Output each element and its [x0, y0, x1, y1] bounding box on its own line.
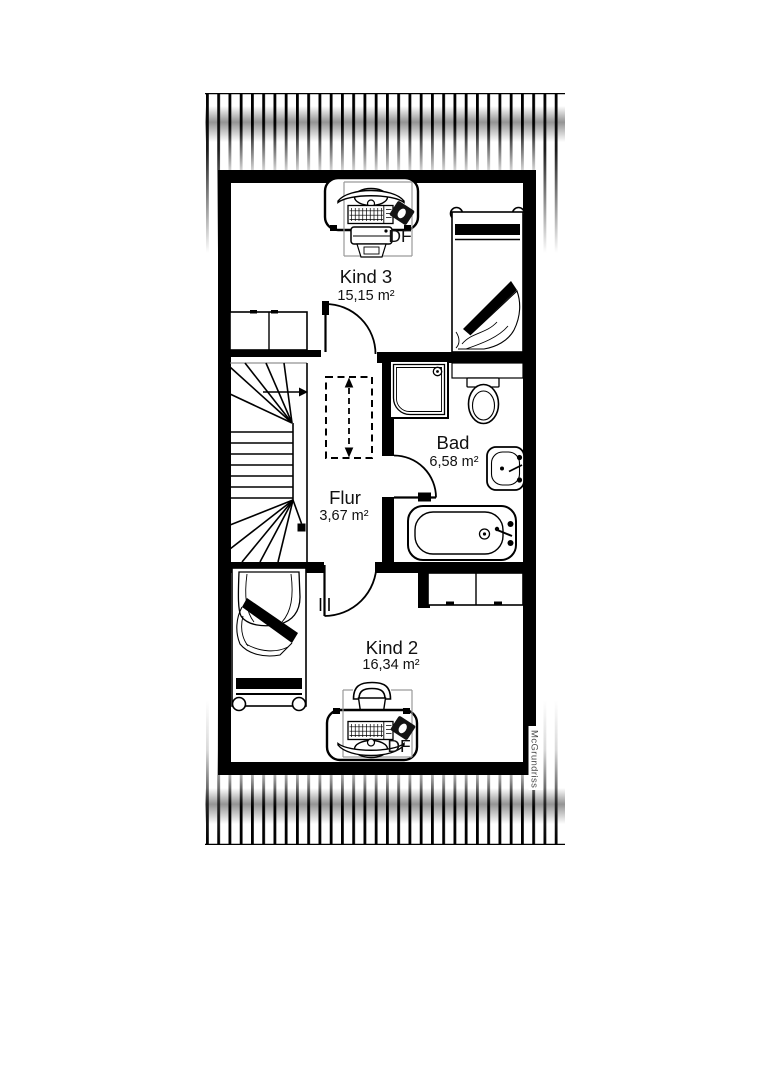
skylight-label-kind3: DF: [388, 226, 411, 246]
bathtub: [408, 506, 516, 560]
door-bad-handle: [418, 493, 431, 502]
wall-kind3-stairs: [230, 350, 321, 357]
stair-newel-post: [298, 524, 306, 532]
watermark-text: McGrundriss: [529, 730, 540, 788]
keyboard-icon: [348, 206, 393, 224]
dashed-arrow-up: [345, 378, 354, 388]
door-kind2: [321, 564, 377, 616]
door-kind3: [322, 301, 376, 354]
floor-plan-canvas: Kind 3 15,15 m² Bad 6,58 m² Flur 3,67 m²…: [0, 0, 764, 1080]
dashed-arrow-down: [345, 448, 354, 458]
room-area-kind2: 16,34 m²: [362, 657, 419, 673]
room-label-kind2: Kind 2: [366, 637, 418, 658]
desk-chair-icon: [354, 683, 391, 712]
skylight-label-kind2: DF: [387, 736, 410, 756]
washbasin: [487, 447, 524, 490]
wall-bad-west-lower: [382, 497, 394, 573]
toilet: [467, 378, 499, 424]
room-area-kind3: 15,15 m²: [337, 288, 394, 304]
keyboard-icon: [348, 722, 393, 740]
wall-right: [523, 170, 536, 775]
wardrobe-kind2: [428, 573, 523, 605]
room-label-bad: Bad: [437, 432, 470, 453]
dashed-opening: [326, 377, 372, 458]
room-label-flur: Flur: [329, 487, 361, 508]
wall-kind2-top-right: [375, 562, 523, 573]
staircase: [230, 363, 308, 562]
wardrobe-kind3: [230, 310, 307, 350]
room-area-bad: 6,58 m²: [429, 454, 478, 470]
printer-icon: [351, 227, 392, 257]
wall-left: [218, 170, 231, 775]
bed-kind3: [451, 208, 525, 353]
shower: [390, 361, 448, 418]
bed-kind2: [232, 568, 306, 711]
room-area-flur: 3,67 m²: [319, 508, 368, 524]
room-label-kind3: Kind 3: [340, 266, 392, 287]
toilet-cistern-shelf: [452, 363, 523, 378]
wall-bottom: [220, 762, 536, 775]
watermark: McGrundriss: [529, 726, 544, 790]
